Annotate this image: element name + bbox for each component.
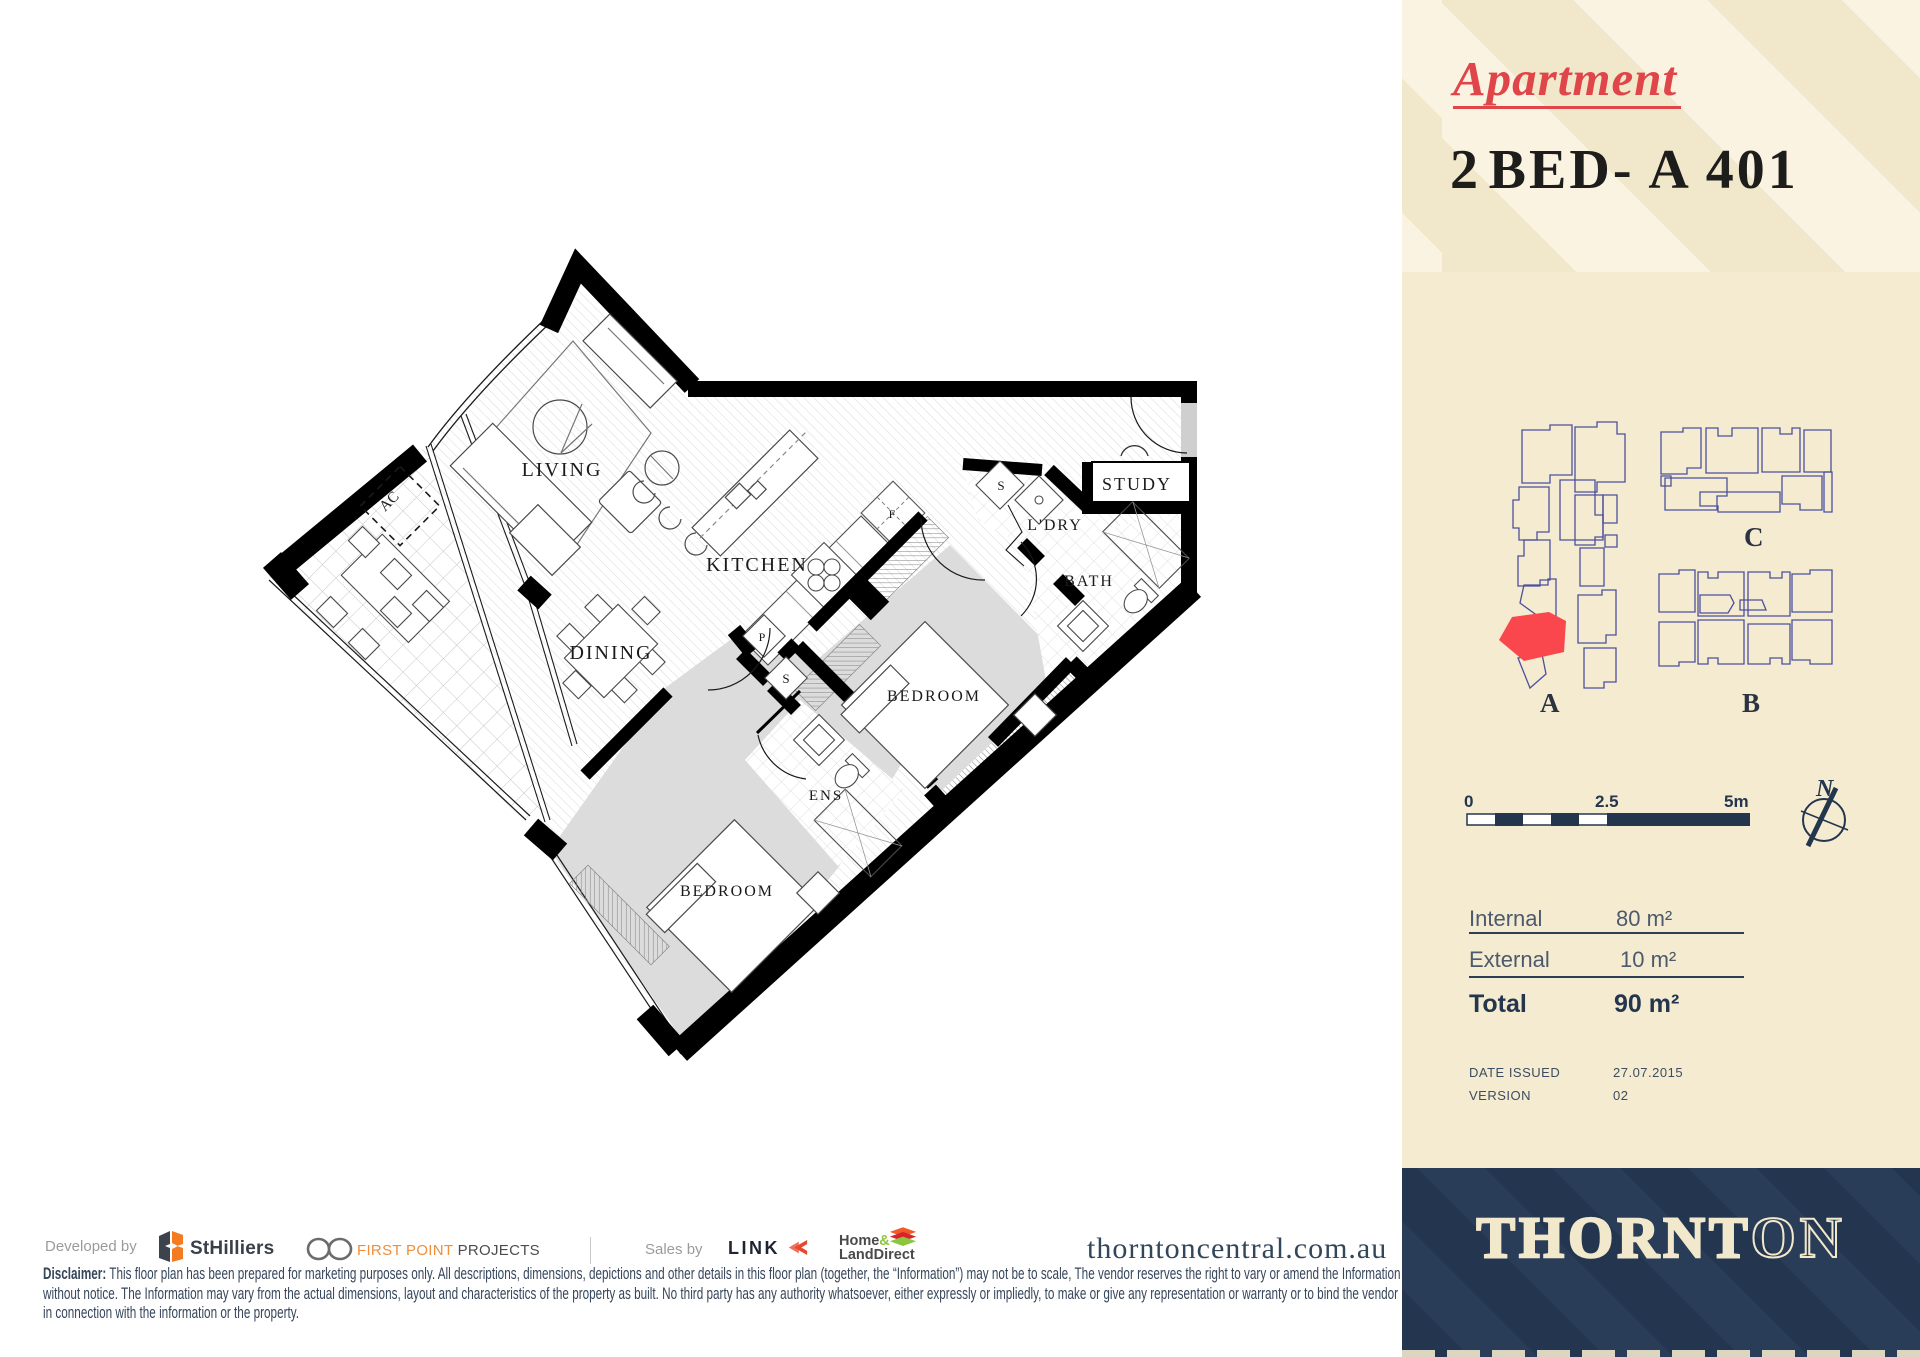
svg-text:P: P	[759, 630, 768, 644]
svg-text:S: S	[782, 671, 791, 686]
svg-text:STUDY: STUDY	[1102, 474, 1172, 494]
svg-text:L'DRY: L'DRY	[1027, 517, 1083, 534]
svg-text:ENS: ENS	[809, 788, 843, 804]
svg-text:DINING: DINING	[569, 642, 652, 664]
svg-text:BEDROOM: BEDROOM	[680, 883, 774, 900]
svg-text:LIVING: LIVING	[522, 459, 603, 481]
svg-text:BEDROOM: BEDROOM	[887, 688, 981, 705]
svg-text:S: S	[997, 478, 1006, 493]
svg-text:KITCHEN: KITCHEN	[706, 554, 808, 576]
svg-text:BATH: BATH	[1064, 573, 1114, 590]
svg-text:F: F	[889, 507, 898, 521]
